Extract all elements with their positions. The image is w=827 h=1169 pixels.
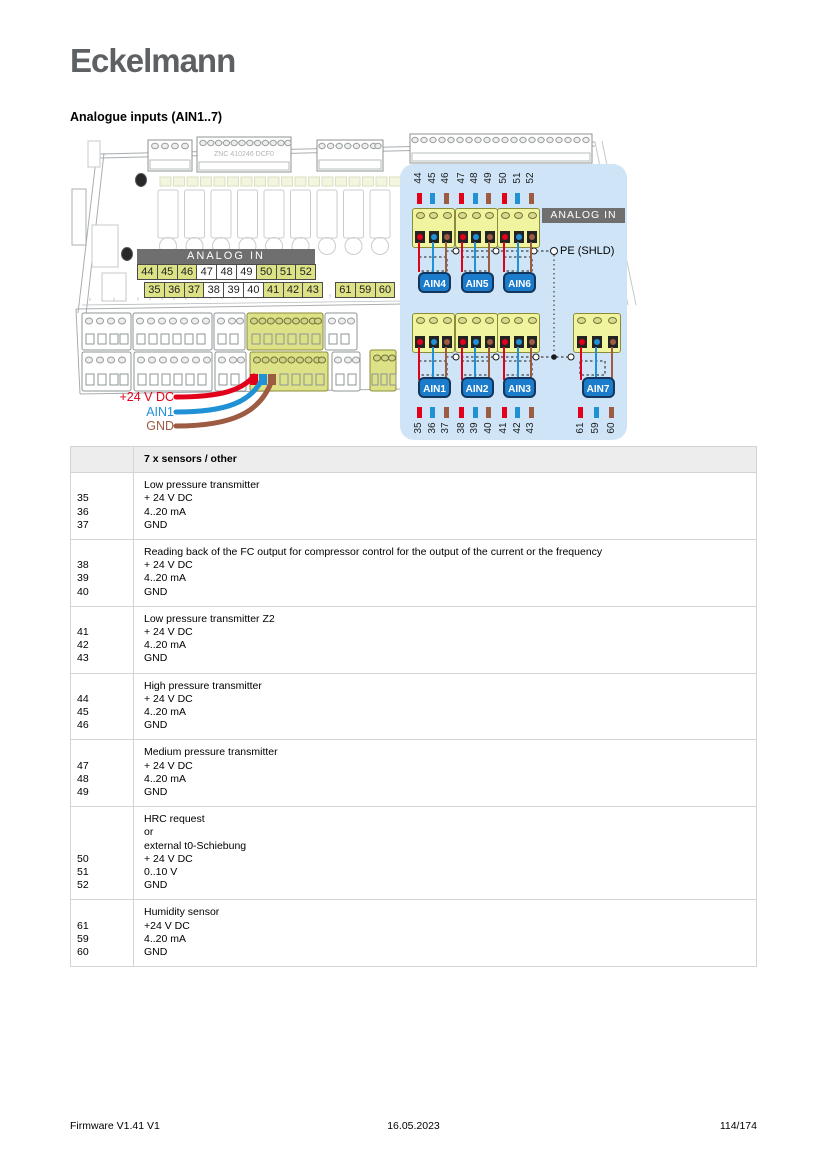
terminal-screw-icon bbox=[577, 317, 586, 324]
panel-wire-43 bbox=[530, 347, 532, 380]
ain-badge-ain7: AIN7 bbox=[582, 377, 615, 398]
description-line: + 24 V DC bbox=[144, 693, 756, 706]
wire-label-gnd: GND bbox=[70, 419, 174, 434]
ain-badge-ain3: AIN3 bbox=[503, 377, 536, 398]
wiring-diagram: ZNC 410246 DCF0 bbox=[70, 133, 760, 445]
table-row-47-48-49: 474849Medium pressure transmitter+ 24 V … bbox=[71, 739, 756, 806]
wire-clamp-icon bbox=[592, 336, 602, 348]
terminal-number-48: 48 bbox=[469, 167, 481, 189]
terminal-tick-46 bbox=[444, 193, 449, 204]
buzzer-component bbox=[136, 174, 147, 187]
page-title: Analogue inputs (AIN1..7) bbox=[70, 110, 222, 124]
ain-badge-ain1: AIN1 bbox=[418, 377, 451, 398]
footer-page-number: 114/174 bbox=[720, 1120, 757, 1132]
terminal-number: 37 bbox=[77, 519, 133, 532]
wire-dot-blue bbox=[594, 339, 600, 345]
panel-wire-41 bbox=[503, 347, 505, 380]
wire-clamp-icon bbox=[415, 336, 425, 348]
terminal-numbers-cell: 353637 bbox=[71, 473, 134, 539]
wire-clamp-icon bbox=[458, 231, 468, 243]
terminal-screw-icon bbox=[472, 317, 481, 324]
board-terminal-cell-41: 41 bbox=[263, 282, 284, 298]
terminal-tick-51 bbox=[515, 193, 520, 204]
board-terminal-cell-61: 61 bbox=[335, 282, 356, 298]
wire-dot-blue bbox=[431, 339, 437, 345]
terminal-numbers-cell: 444546 bbox=[71, 674, 134, 740]
terminal-screw-icon bbox=[501, 212, 510, 219]
ain-badge-ain6: AIN6 bbox=[503, 272, 536, 293]
wire-dot-red bbox=[460, 339, 466, 345]
description-line: + 24 V DC bbox=[144, 760, 756, 773]
terminal-number: 43 bbox=[77, 652, 133, 665]
wire-clamp-icon bbox=[485, 336, 495, 348]
terminal-screw-icon bbox=[458, 317, 467, 324]
terminal-number-49: 49 bbox=[483, 167, 495, 189]
wire-dot-red bbox=[460, 234, 466, 240]
panel-wire-51 bbox=[517, 242, 519, 272]
description-line: 4..20 mA bbox=[144, 572, 756, 585]
terminal-tick-45 bbox=[430, 193, 435, 204]
eckelmann-logo: Eckelmann bbox=[70, 42, 235, 80]
terminal-number-46: 46 bbox=[440, 167, 452, 189]
wire-dot-brown bbox=[529, 339, 535, 345]
wire-labels: +24 V DCAIN1GND bbox=[70, 390, 174, 434]
terminal-screw-icon bbox=[429, 212, 438, 219]
description-line: or bbox=[144, 826, 756, 839]
front-terminal-strips bbox=[82, 313, 396, 391]
wire-dot-brown bbox=[610, 339, 616, 345]
wire-dot-brown bbox=[444, 234, 450, 240]
analog-in-detail-panel: ANALOG IN PE (SHLD) 444546AIN4474849AIN5… bbox=[400, 164, 627, 440]
wire-clamp-icon bbox=[458, 336, 468, 348]
description-line: GND bbox=[144, 946, 756, 959]
terminal-number-44: 44 bbox=[413, 167, 425, 189]
wire-dot-blue bbox=[516, 234, 522, 240]
terminal-number-51: 51 bbox=[512, 167, 524, 189]
terminal-tick-47 bbox=[459, 193, 464, 204]
wire-clamp-icon bbox=[527, 231, 537, 243]
board-terminal-cell-51: 51 bbox=[276, 264, 297, 280]
board-terminal-cell-38: 38 bbox=[203, 282, 224, 298]
terminal-number: 46 bbox=[77, 719, 133, 732]
terminal-screw-icon bbox=[593, 317, 602, 324]
terminal-number-43: 43 bbox=[525, 417, 537, 439]
terminal-number-36: 36 bbox=[427, 417, 439, 439]
terminal-number-38: 38 bbox=[456, 417, 468, 439]
description-cell: Reading back of the FC output for compre… bbox=[134, 540, 756, 606]
description-line: + 24 V DC bbox=[144, 492, 756, 505]
terminal-number: 50 bbox=[77, 853, 133, 866]
wire-dot-red bbox=[417, 234, 423, 240]
table-header-description: 7 x sensors / other bbox=[134, 447, 756, 472]
description-cell: Medium pressure transmitter+ 24 V DC4..2… bbox=[134, 740, 756, 806]
description-line: + 24 V DC bbox=[144, 853, 756, 866]
board-terminal-cell-35: 35 bbox=[144, 282, 165, 298]
table-row-35-36-37: 353637Low pressure transmitter+ 24 V DC4… bbox=[71, 472, 756, 539]
description-cell: Low pressure transmitter Z2+ 24 V DC4..2… bbox=[134, 607, 756, 673]
footer-date: 16.05.2023 bbox=[70, 1120, 757, 1132]
terminal-number-59: 59 bbox=[590, 417, 602, 439]
terminal-number: 36 bbox=[77, 506, 133, 519]
board-terminal-cell-42: 42 bbox=[283, 282, 304, 298]
board-terminal-cell-45: 45 bbox=[157, 264, 178, 280]
ain-badge-ain2: AIN2 bbox=[461, 377, 494, 398]
wire-clamp-icon bbox=[577, 336, 587, 348]
terminal-tick-48 bbox=[473, 193, 478, 204]
description-line: 4..20 mA bbox=[144, 706, 756, 719]
terminal-numbers-cell: 474849 bbox=[71, 740, 134, 806]
description-line: GND bbox=[144, 719, 756, 732]
wire-dot-blue bbox=[516, 339, 522, 345]
description-line: High pressure transmitter bbox=[144, 680, 756, 693]
board-terminal-cell-52: 52 bbox=[295, 264, 316, 280]
board-terminal-cell-46: 46 bbox=[177, 264, 198, 280]
board-terminal-cell-60: 60 bbox=[375, 282, 396, 298]
terminal-screw-icon bbox=[528, 212, 537, 219]
terminal-number: 44 bbox=[77, 693, 133, 706]
panel-wire-49 bbox=[488, 242, 490, 272]
description-line: GND bbox=[144, 879, 756, 892]
terminal-number-61: 61 bbox=[575, 417, 587, 439]
description-cell: HRC requestorexternal t0-Schiebung+ 24 V… bbox=[134, 807, 756, 899]
terminal-number: 42 bbox=[77, 639, 133, 652]
wire-dot-brown bbox=[444, 339, 450, 345]
terminal-number-47: 47 bbox=[456, 167, 468, 189]
wire-dot-blue bbox=[473, 234, 479, 240]
panel-wire-59 bbox=[595, 347, 597, 380]
board-terminal-cell-36: 36 bbox=[164, 282, 185, 298]
board-terminal-cell-39: 39 bbox=[223, 282, 244, 298]
table-header-row: 7 x sensors / other bbox=[71, 447, 756, 472]
panel-wire-35 bbox=[418, 347, 420, 380]
terminal-screw-icon bbox=[472, 212, 481, 219]
terminal-number-35: 35 bbox=[413, 417, 425, 439]
description-line: GND bbox=[144, 652, 756, 665]
board-terminal-cell-50: 50 bbox=[256, 264, 277, 280]
panel-wire-47 bbox=[461, 242, 463, 272]
board-terminal-cell-43: 43 bbox=[302, 282, 323, 298]
description-line: GND bbox=[144, 519, 756, 532]
terminal-screw-icon bbox=[485, 212, 494, 219]
terminal-number: 45 bbox=[77, 706, 133, 719]
description-line: GND bbox=[144, 586, 756, 599]
wire-clamp-icon bbox=[514, 231, 524, 243]
terminal-number: 35 bbox=[77, 492, 133, 505]
description-cell: Low pressure transmitter+ 24 V DC4..20 m… bbox=[134, 473, 756, 539]
description-line: 4..20 mA bbox=[144, 933, 756, 946]
wire-clamp-icon bbox=[415, 231, 425, 243]
table-row-50-51-52: 505152HRC requestorexternal t0-Schiebung… bbox=[71, 806, 756, 899]
terminal-assignment-table: 7 x sensors / other 353637Low pressure t… bbox=[70, 446, 757, 967]
wire-clamp-icon bbox=[442, 231, 452, 243]
ain-badge-ain4: AIN4 bbox=[418, 272, 451, 293]
terminal-number: 47 bbox=[77, 760, 133, 773]
wire-clamp-icon bbox=[500, 336, 510, 348]
panel-wire-37 bbox=[445, 347, 447, 380]
panel-wire-40 bbox=[488, 347, 490, 380]
description-line: Low pressure transmitter Z2 bbox=[144, 613, 756, 626]
board-terminal-row-61-59-60: 615960 bbox=[335, 282, 395, 298]
board-terminal-row-44-52: 444546474849505152 bbox=[137, 264, 316, 280]
terminal-number-41: 41 bbox=[498, 417, 510, 439]
panel-wire-38 bbox=[461, 347, 463, 380]
description-line: + 24 V DC bbox=[144, 559, 756, 572]
board-terminal-cell-44: 44 bbox=[137, 264, 158, 280]
board-terminal-cell-59: 59 bbox=[355, 282, 376, 298]
description-line: +24 V DC bbox=[144, 920, 756, 933]
wire-clamp-icon bbox=[608, 336, 618, 348]
wire-clamp-icon bbox=[485, 231, 495, 243]
terminal-numbers-cell: 505152 bbox=[71, 807, 134, 899]
panel-wire-52 bbox=[530, 242, 532, 272]
ain-badge-ain5: AIN5 bbox=[461, 272, 494, 293]
panel-wire-36 bbox=[432, 347, 434, 380]
wire-dot-red bbox=[579, 339, 585, 345]
board-terminal-cell-37: 37 bbox=[184, 282, 205, 298]
terminal-numbers-cell: 414243 bbox=[71, 607, 134, 673]
panel-wire-60 bbox=[611, 347, 613, 380]
description-line: 4..20 mA bbox=[144, 506, 756, 519]
table-header-terminals bbox=[71, 447, 134, 472]
terminal-number: 40 bbox=[77, 586, 133, 599]
wire-clamp-icon bbox=[500, 231, 510, 243]
terminal-screw-icon bbox=[528, 317, 537, 324]
terminal-tick-44 bbox=[417, 193, 422, 204]
terminal-number-39: 39 bbox=[469, 417, 481, 439]
terminal-number-50: 50 bbox=[498, 167, 510, 189]
description-line: 4..20 mA bbox=[144, 639, 756, 652]
terminal-screw-icon bbox=[416, 212, 425, 219]
wire-dot-red bbox=[417, 339, 423, 345]
wire-dot-brown bbox=[487, 339, 493, 345]
terminal-number: 48 bbox=[77, 773, 133, 786]
terminal-number-45: 45 bbox=[427, 167, 439, 189]
terminal-screw-icon bbox=[514, 212, 523, 219]
wire-clamp-icon bbox=[471, 231, 481, 243]
description-line: external t0-Schiebung bbox=[144, 840, 756, 853]
terminal-number: 59 bbox=[77, 933, 133, 946]
wire-clamp-icon bbox=[429, 231, 439, 243]
board-terminal-cell-47: 47 bbox=[196, 264, 217, 280]
description-line: 0..10 V bbox=[144, 866, 756, 879]
wire-clamp-icon bbox=[442, 336, 452, 348]
wire-dot-brown bbox=[529, 234, 535, 240]
panel-terminal-groups: 444546AIN4474849AIN5505152AIN6353637AIN1… bbox=[400, 164, 627, 440]
terminal-numbers-cell: 383940 bbox=[71, 540, 134, 606]
terminal-screw-icon bbox=[608, 317, 617, 324]
panel-wire-61 bbox=[580, 347, 582, 380]
terminal-number-52: 52 bbox=[525, 167, 537, 189]
terminal-tick-50 bbox=[502, 193, 507, 204]
panel-wire-39 bbox=[474, 347, 476, 380]
description-line: 4..20 mA bbox=[144, 773, 756, 786]
description-cell: Humidity sensor+24 V DC4..20 mAGND bbox=[134, 900, 756, 966]
panel-wire-46 bbox=[445, 242, 447, 272]
panel-wire-48 bbox=[474, 242, 476, 272]
terminal-number-60: 60 bbox=[606, 417, 618, 439]
wire-dot-red bbox=[502, 339, 508, 345]
terminal-screw-icon bbox=[416, 317, 425, 324]
panel-wire-42 bbox=[517, 347, 519, 380]
terminal-tick-52 bbox=[529, 193, 534, 204]
terminal-screw-icon bbox=[485, 317, 494, 324]
board-terminal-cell-40: 40 bbox=[243, 282, 264, 298]
terminal-number: 60 bbox=[77, 946, 133, 959]
relay-row bbox=[158, 190, 390, 255]
terminal-number: 49 bbox=[77, 786, 133, 799]
terminal-number: 41 bbox=[77, 626, 133, 639]
wire-label--24-v-dc: +24 V DC bbox=[70, 390, 174, 405]
terminal-screw-icon bbox=[443, 212, 452, 219]
wire-dot-red bbox=[502, 234, 508, 240]
table-row-38-39-40: 383940Reading back of the FC output for … bbox=[71, 539, 756, 606]
capacitor-component bbox=[122, 248, 133, 261]
terminal-screw-icon bbox=[443, 317, 452, 324]
table-row-61-59-60: 615960Humidity sensor+24 V DC4..20 mAGND bbox=[71, 899, 756, 966]
table-body: 353637Low pressure transmitter+ 24 V DC4… bbox=[71, 472, 756, 966]
description-line: GND bbox=[144, 786, 756, 799]
description-line: Medium pressure transmitter bbox=[144, 746, 756, 759]
terminal-number-37: 37 bbox=[440, 417, 452, 439]
description-line: Humidity sensor bbox=[144, 906, 756, 919]
table-row-41-42-43: 414243Low pressure transmitter Z2+ 24 V … bbox=[71, 606, 756, 673]
description-line: Reading back of the FC output for compre… bbox=[144, 546, 756, 559]
board-left-components bbox=[72, 141, 126, 301]
description-line: Low pressure transmitter bbox=[144, 479, 756, 492]
terminal-number: 52 bbox=[77, 879, 133, 892]
relay-socket-strip bbox=[160, 177, 401, 186]
wire-dot-brown bbox=[487, 234, 493, 240]
wire-clamp-icon bbox=[471, 336, 481, 348]
description-cell: High pressure transmitter+ 24 V DC4..20 … bbox=[134, 674, 756, 740]
board-terminal-cell-49: 49 bbox=[236, 264, 257, 280]
table-row-44-45-46: 444546High pressure transmitter+ 24 V DC… bbox=[71, 673, 756, 740]
wire-label-ain1: AIN1 bbox=[70, 405, 174, 420]
terminal-number: 38 bbox=[77, 559, 133, 572]
connector-type-label: ZNC 410246 DCF0 bbox=[214, 151, 274, 158]
terminal-number: 51 bbox=[77, 866, 133, 879]
board-analog-in-banner: ANALOG IN bbox=[137, 249, 315, 264]
wire-clamp-icon bbox=[429, 336, 439, 348]
terminal-number: 61 bbox=[77, 920, 133, 933]
description-line: HRC request bbox=[144, 813, 756, 826]
panel-wire-44 bbox=[418, 242, 420, 272]
board-terminal-row-35-43: 353637383940414243 bbox=[144, 282, 323, 298]
terminal-screw-icon bbox=[501, 317, 510, 324]
description-line: + 24 V DC bbox=[144, 626, 756, 639]
terminal-screw-icon bbox=[458, 212, 467, 219]
terminal-tick-49 bbox=[486, 193, 491, 204]
terminal-number: 39 bbox=[77, 572, 133, 585]
terminal-number-42: 42 bbox=[512, 417, 524, 439]
terminal-number-40: 40 bbox=[483, 417, 495, 439]
terminal-numbers-cell: 615960 bbox=[71, 900, 134, 966]
wire-clamp-icon bbox=[514, 336, 524, 348]
panel-wire-50 bbox=[503, 242, 505, 272]
terminal-screw-icon bbox=[429, 317, 438, 324]
wire-clamp-icon bbox=[527, 336, 537, 348]
wire-dot-blue bbox=[473, 339, 479, 345]
terminal-screw-icon bbox=[514, 317, 523, 324]
panel-wire-45 bbox=[432, 242, 434, 272]
wire-dot-blue bbox=[431, 234, 437, 240]
board-terminal-cell-48: 48 bbox=[216, 264, 237, 280]
